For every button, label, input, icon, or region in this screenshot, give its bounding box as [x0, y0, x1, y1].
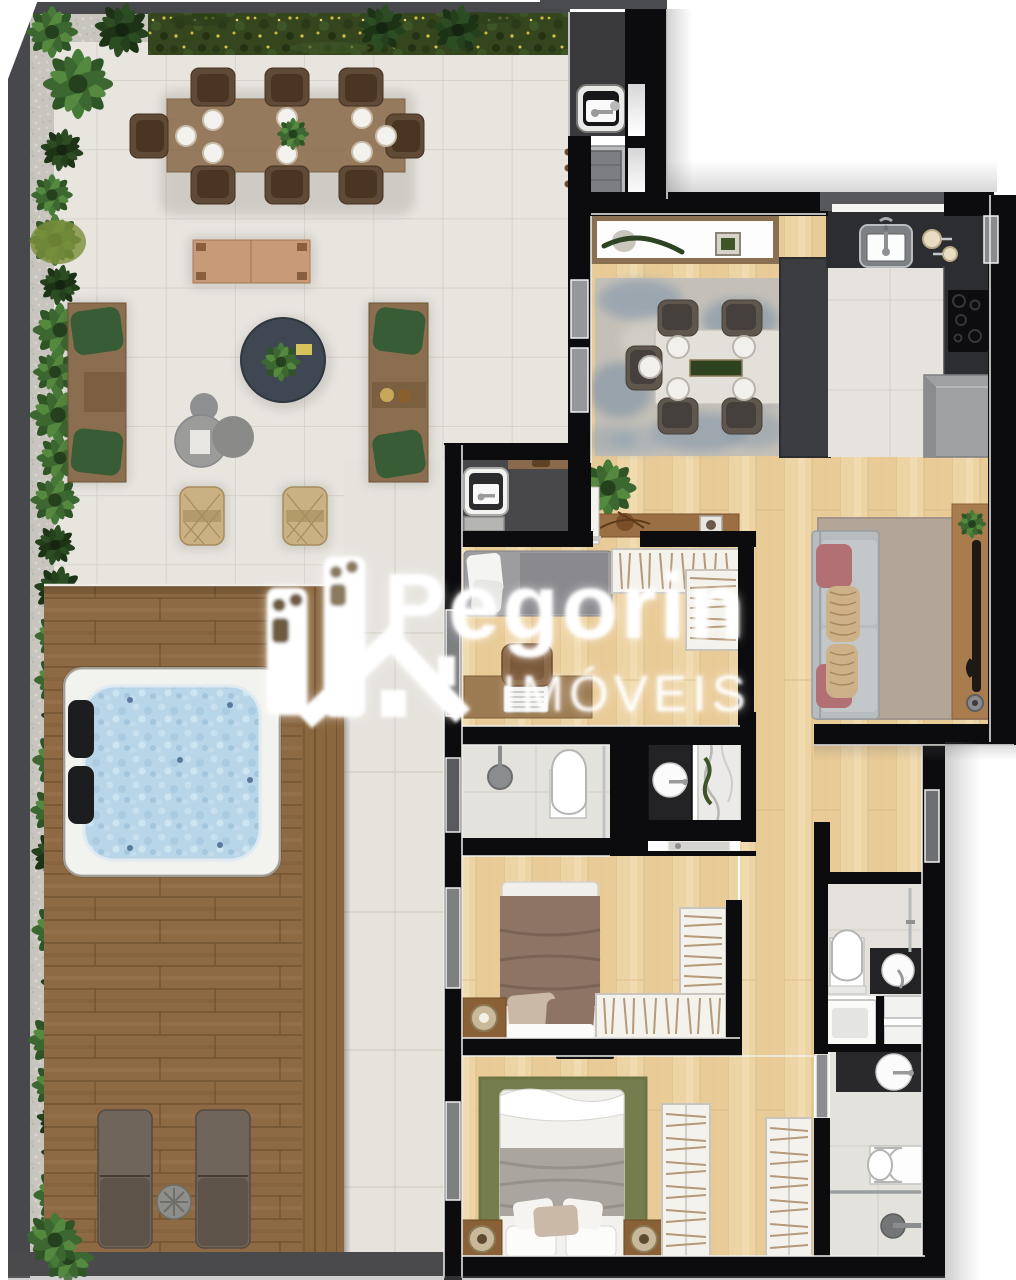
svg-text:Pegorin: Pegorin — [384, 556, 747, 658]
svg-text:IMÓVEIS: IMÓVEIS — [502, 665, 751, 722]
